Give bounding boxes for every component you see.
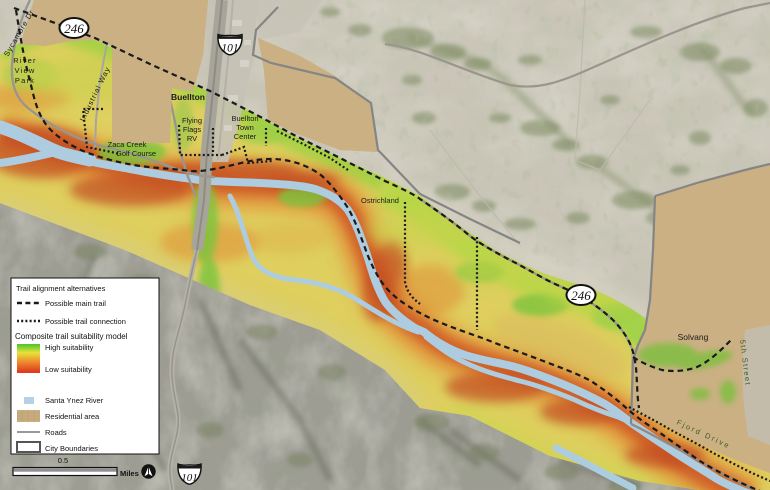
svg-text:Center: Center xyxy=(234,132,257,141)
svg-text:Roads: Roads xyxy=(45,428,67,437)
svg-text:Miles: Miles xyxy=(120,469,139,478)
svg-text:0.5: 0.5 xyxy=(58,456,68,465)
svg-text:Possible trail connection: Possible trail connection xyxy=(45,317,126,326)
svg-text:Buellton: Buellton xyxy=(171,92,205,102)
svg-text:101: 101 xyxy=(221,43,238,55)
svg-text:101: 101 xyxy=(181,472,198,484)
svg-text:Solvang: Solvang xyxy=(678,332,709,342)
svg-text:246: 246 xyxy=(64,21,84,36)
svg-text:Flags: Flags xyxy=(183,125,202,134)
svg-text:High suitability: High suitability xyxy=(45,343,94,352)
svg-text:City Boundaries: City Boundaries xyxy=(45,444,98,453)
svg-text:Buellton: Buellton xyxy=(231,114,258,123)
svg-text:River: River xyxy=(13,56,37,65)
svg-text:Possible main trail: Possible main trail xyxy=(45,299,106,308)
svg-text:RV: RV xyxy=(187,134,197,143)
svg-text:Composite trail suitability mo: Composite trail suitability model xyxy=(15,332,128,341)
svg-text:Golf Course: Golf Course xyxy=(116,149,156,158)
svg-text:Low suitability: Low suitability xyxy=(45,365,92,374)
svg-text:Town: Town xyxy=(236,123,254,132)
svg-text:Trail alignment alternatives: Trail alignment alternatives xyxy=(16,284,106,293)
svg-text:View: View xyxy=(15,66,36,75)
svg-text:Ostrichland: Ostrichland xyxy=(361,196,399,205)
svg-text:Park: Park xyxy=(15,76,35,85)
svg-text:246: 246 xyxy=(571,288,591,303)
svg-text:Zaca Creek: Zaca Creek xyxy=(108,140,147,149)
svg-text:Flying: Flying xyxy=(182,116,202,125)
svg-text:Residential area: Residential area xyxy=(45,412,100,421)
svg-text:Santa Ynez River: Santa Ynez River xyxy=(45,396,104,405)
